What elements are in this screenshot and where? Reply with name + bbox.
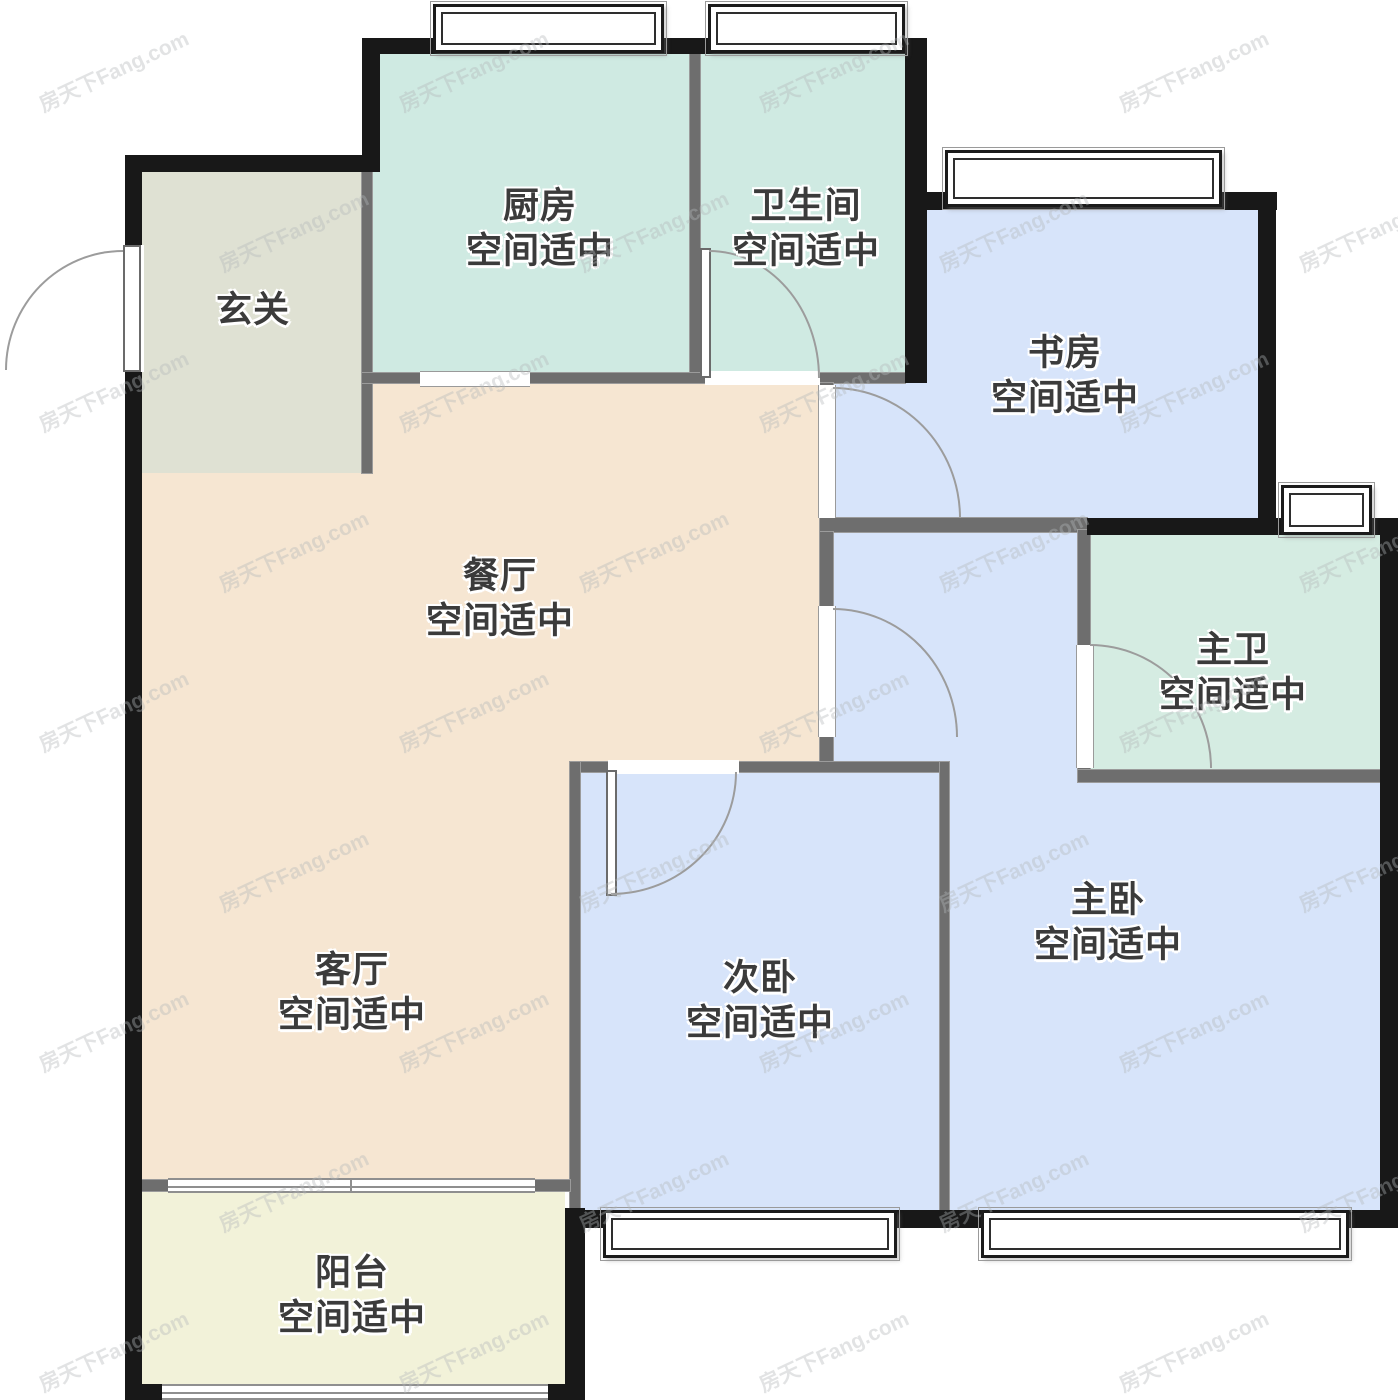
room-name: 书房 bbox=[991, 330, 1139, 375]
study-window bbox=[945, 150, 1222, 207]
kitchen-window bbox=[433, 4, 664, 53]
room-name: 主卧 bbox=[1034, 877, 1182, 922]
kitchen-opening bbox=[420, 371, 530, 387]
master-bedroom-window bbox=[981, 1210, 1349, 1258]
watermark-text: 房天下Fang.com bbox=[1294, 183, 1398, 279]
outer-wall-right bbox=[1380, 518, 1398, 1228]
outer-wall-study-right bbox=[1258, 192, 1276, 523]
outer-wall-balcony-bottom-right bbox=[548, 1384, 585, 1400]
label-dining: 餐厅 空间适中 bbox=[426, 553, 574, 642]
room-name: 餐厅 bbox=[426, 553, 574, 598]
entrance-door-leaf bbox=[123, 245, 141, 372]
room-status: 空间适中 bbox=[466, 228, 614, 273]
outer-wall-balcony-right bbox=[565, 1208, 585, 1400]
outer-wall-bathroom-right bbox=[905, 38, 927, 383]
room-status: 空间适中 bbox=[278, 1295, 426, 1340]
room-name: 玄关 bbox=[216, 288, 290, 333]
watermark-text: 房天下Fang.com bbox=[34, 23, 194, 119]
room-name: 次卧 bbox=[686, 955, 834, 1000]
bathroom-window bbox=[708, 4, 905, 53]
label-master-bath: 主卫 空间适中 bbox=[1159, 627, 1307, 716]
balcony-opening-tick bbox=[350, 1178, 352, 1193]
room-status: 空间适中 bbox=[991, 375, 1139, 420]
wall-entry-kitchen bbox=[362, 172, 372, 473]
room-name: 阳台 bbox=[278, 1250, 426, 1295]
room-status: 空间适中 bbox=[732, 228, 880, 273]
wall-bedroom-separator bbox=[940, 762, 949, 1210]
floor-plan: 玄关 厨房 空间适中 卫生间 空间适中 书房 空间适中 餐厅 空间适中 主卫 空… bbox=[0, 0, 1398, 1400]
label-bathroom: 卫生间 空间适中 bbox=[732, 183, 880, 272]
label-living: 客厅 空间适中 bbox=[278, 947, 426, 1036]
room-name: 厨房 bbox=[466, 183, 614, 228]
wall-kitchen-bathroom bbox=[690, 53, 700, 373]
watermark-text: 房天下Fang.com bbox=[1114, 23, 1274, 119]
wall-study-corridor bbox=[820, 518, 1087, 532]
label-kitchen: 厨房 空间适中 bbox=[466, 183, 614, 272]
wall-secondbedroom-left bbox=[570, 762, 580, 1210]
room-status: 空间适中 bbox=[686, 1000, 834, 1045]
watermark-text: 房天下Fang.com bbox=[754, 1303, 914, 1399]
label-entry: 玄关 bbox=[216, 288, 290, 333]
outer-wall-entry-top bbox=[125, 155, 372, 172]
wall-corridor-stub-upper bbox=[820, 532, 833, 608]
label-master-bedroom: 主卧 空间适中 bbox=[1034, 877, 1182, 966]
balcony-window-band bbox=[162, 1384, 548, 1400]
room-status: 空间适中 bbox=[278, 992, 426, 1037]
room-status: 空间适中 bbox=[1034, 922, 1182, 967]
label-study: 书房 空间适中 bbox=[991, 330, 1139, 419]
outer-wall-kitchen-left bbox=[362, 38, 380, 172]
outer-wall-left-lower bbox=[125, 372, 142, 1400]
master-bath-window bbox=[1281, 485, 1372, 535]
watermark-text: 房天下Fang.com bbox=[1114, 1303, 1274, 1399]
outer-wall-balcony-bottom-left bbox=[125, 1384, 162, 1400]
room-name: 卫生间 bbox=[732, 183, 880, 228]
label-second-bedroom: 次卧 空间适中 bbox=[686, 955, 834, 1044]
entrance-door-arc bbox=[5, 250, 123, 370]
room-name: 主卫 bbox=[1159, 627, 1307, 672]
second-bedroom-window bbox=[603, 1210, 897, 1258]
wall-masterbath-bottom bbox=[1078, 770, 1380, 782]
room-status: 空间适中 bbox=[426, 598, 574, 643]
room-name: 客厅 bbox=[278, 947, 426, 992]
wall-corridor-stub-lower bbox=[820, 737, 833, 764]
label-balcony: 阳台 空间适中 bbox=[278, 1250, 426, 1339]
room-status: 空间适中 bbox=[1159, 672, 1307, 717]
